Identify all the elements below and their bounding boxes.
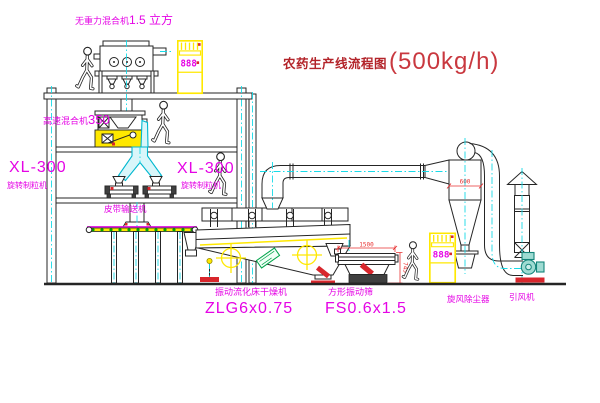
high-speed-mixer-capacity: 350 [88, 112, 110, 127]
belt-conveyor-label: 皮带输送机 [104, 205, 147, 214]
mixer-discharge-valves [107, 76, 147, 89]
fan-label: 引风机 [509, 293, 535, 302]
fluid-bed-dryer-machine [196, 208, 350, 284]
cyclone-label: 旋风除尘器 [447, 295, 490, 304]
exhaust-ductwork [260, 160, 452, 209]
gravity-mixer-label: 无重力混合机1.5 立方 [75, 12, 173, 28]
screen-name-label: 方形振动筛 [328, 288, 373, 297]
granulator-right-model: XL-300 [177, 161, 235, 177]
gravity-mixer-capacity: 1.5 立方 [129, 13, 173, 27]
person-ground-floor [403, 242, 418, 279]
granulator-left-model: XL-300 [9, 160, 67, 176]
person-top-floor [77, 47, 93, 88]
gravity-free-mixer [94, 40, 171, 112]
granulator-left-machine [105, 177, 138, 199]
dryer-name-label: 振动流化床干燥机 [215, 288, 287, 297]
granulator-right-name: 旋转制粒机 [181, 182, 221, 190]
control-cabinet-lower [430, 233, 455, 282]
granulator-left-name: 旋转制粒机 [7, 182, 47, 190]
page-title: 农药生产线流程图 (500kg/h) [283, 48, 499, 76]
dryer-support-stand [200, 258, 219, 282]
dryer-model-label: ZLG6x0.75 [205, 301, 293, 317]
conveyor-legs [112, 232, 183, 284]
control-cabinet-upper [178, 41, 202, 93]
title-text: 农药生产线流程图 [283, 53, 387, 76]
screen-model-label: FS0.6x1.5 [325, 301, 407, 317]
person-second-floor [153, 101, 169, 142]
belt-conveyor-machine [86, 227, 200, 283]
gravity-mixer-name: 无重力混合机 [75, 16, 129, 26]
vibrating-screen-machine: 1500 745 [335, 242, 409, 284]
high-speed-mixer-name: 高速混合机 [43, 116, 88, 126]
flow-diagram-page: 888 [0, 0, 600, 403]
screen-length-dim: 1500 [359, 242, 374, 249]
high-speed-mixer-label: 高速混合机350 [43, 112, 110, 128]
granulator-right-machine [143, 177, 176, 199]
title-capacity: (500kg/h) [389, 48, 499, 76]
